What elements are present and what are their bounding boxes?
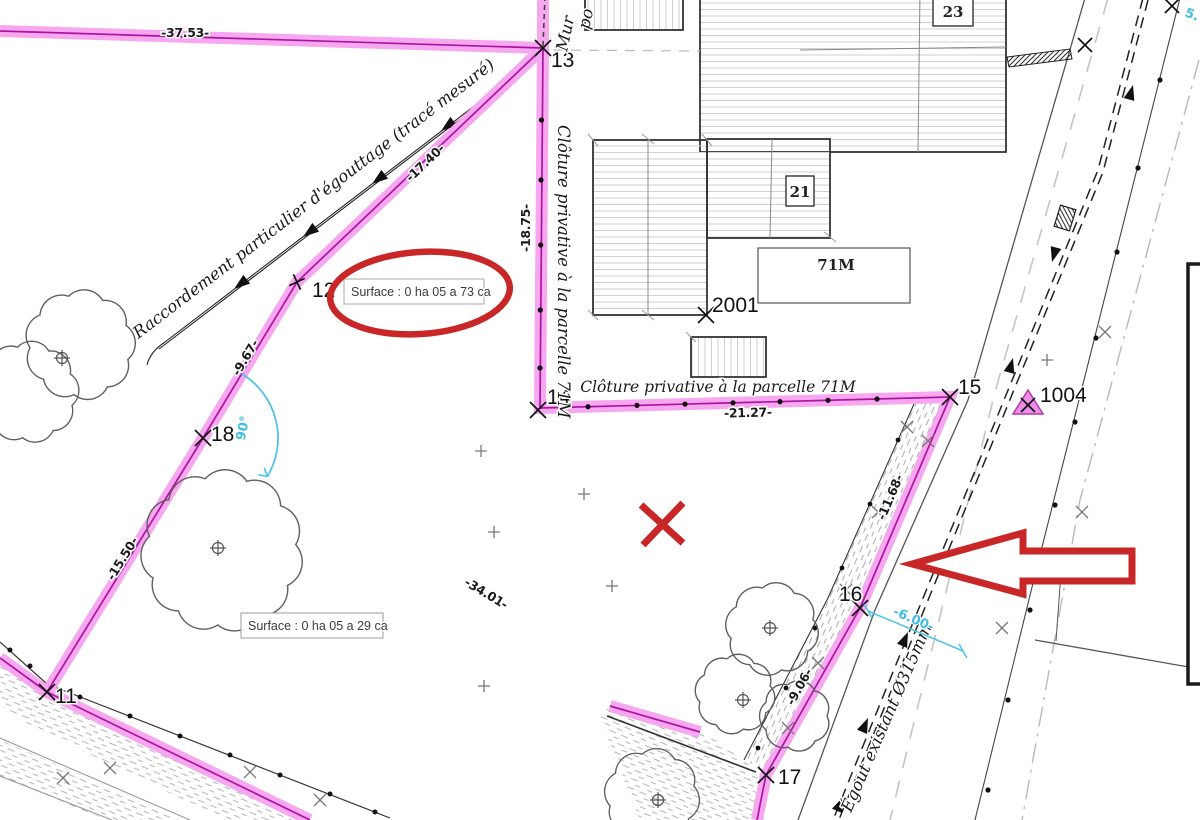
dim-21-27: -21.27-: [724, 404, 772, 420]
point-label-16: 16: [839, 583, 862, 606]
survey-plan-canvas: -37.53- -17.40- -9.67- -15.50- -34.01- -…: [0, 0, 1200, 820]
fence-post-dots: [985, 77, 1162, 792]
angle-arc-arrowhead: [258, 468, 267, 477]
building-number-21: 21: [790, 183, 811, 201]
point-label-18: 18: [211, 423, 234, 446]
building-mur-top: [585, 0, 683, 30]
point-label-2001: 2001: [712, 294, 759, 317]
building-number-23: 23: [943, 3, 964, 21]
point-label-1004: 1004: [1040, 384, 1087, 407]
buildings: [585, 0, 1072, 377]
manhole-symbol: [1054, 205, 1076, 231]
dim-34-01: -34.01-: [462, 574, 511, 612]
point-label-15: 15: [958, 376, 981, 399]
surface-box-2: Surface : 0 ha 05 a 29 ca: [241, 613, 388, 638]
dim-37-53: -37.53-: [161, 25, 209, 40]
inset-frame: [1188, 264, 1200, 684]
trace-end-hook: [147, 342, 165, 365]
corner-partial-dim-label: 5.: [1183, 6, 1200, 25]
surface-1-label: Surface : 0 ha 05 a 73 ca: [351, 285, 491, 299]
cloture-vertical-label: Clôture privative à la parcelle 71M: [554, 125, 573, 419]
mur-label-fragment: Mur: [552, 13, 578, 54]
sewer-flow-arrows: [832, 84, 1138, 813]
dim-18-75: -18.75-: [518, 204, 533, 252]
point-1004-triangle: [1013, 390, 1043, 414]
building-small-south: [691, 337, 766, 377]
angle-90-label: 90°: [234, 415, 254, 442]
dim-17-40: -17.40-: [402, 141, 447, 185]
point-label-17: 17: [778, 766, 801, 789]
survey-plan-svg: -37.53- -17.40- -9.67- -15.50- -34.01- -…: [0, 0, 1200, 820]
dashed-line-from-13: [553, 50, 700, 51]
road-far-dashdot-line: [1022, 60, 1199, 820]
building-left: [593, 140, 707, 315]
paths: [0, 399, 950, 820]
surface-box-1: Surface : 0 ha 05 a 73 ca: [344, 279, 491, 304]
point-label-11: 11: [55, 685, 77, 708]
surface-2-label: Surface : 0 ha 05 a 29 ca: [248, 619, 388, 633]
cloture-horizontal-label: Clôture privative à la parcelle 71M: [580, 378, 857, 396]
red-x-mark: [641, 503, 683, 545]
side-boundary-line: [1035, 640, 1200, 669]
building-number-71m: 71M: [817, 256, 854, 274]
tree-canopy: [695, 654, 774, 733]
egout-label: Égout existant Ø315mm: [836, 620, 936, 815]
garden-wall-bar: [1007, 49, 1072, 67]
boundary-band-west: [47, 48, 543, 820]
red-arrow: [912, 533, 1132, 594]
tree-canopy: [726, 583, 818, 675]
boundary-line-west: [47, 48, 543, 820]
